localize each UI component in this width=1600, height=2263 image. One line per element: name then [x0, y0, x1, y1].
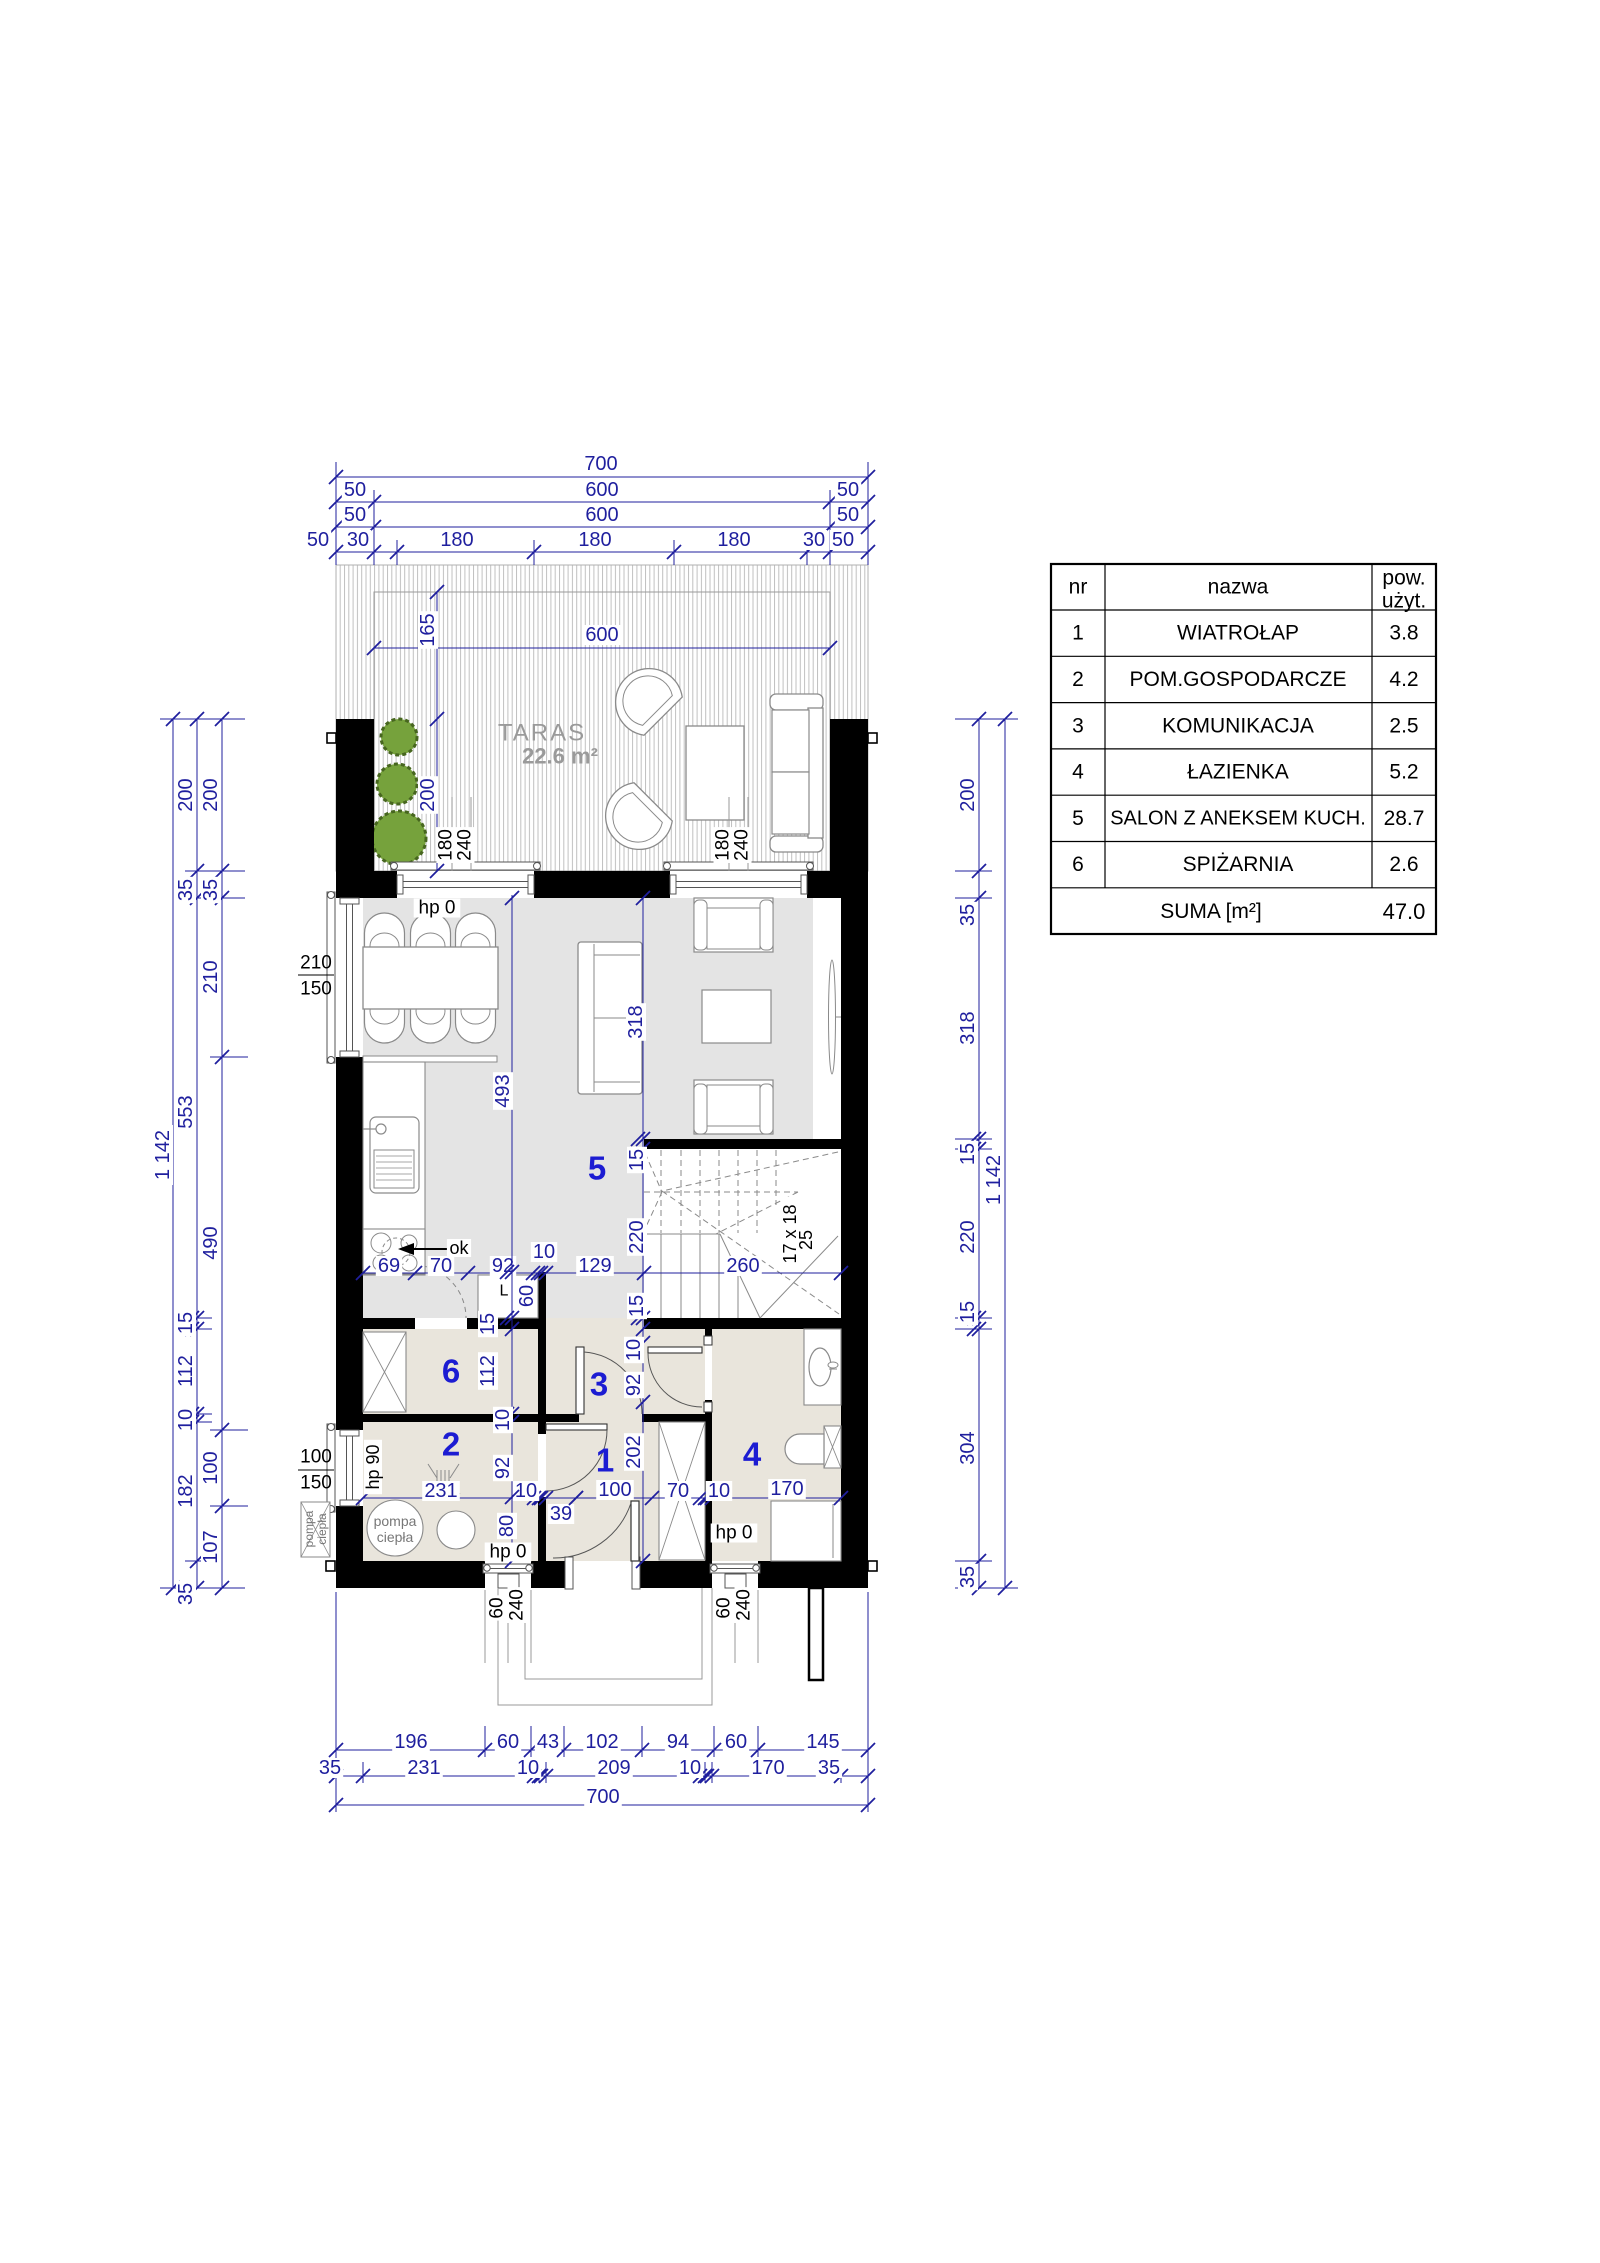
svg-text:15: 15: [626, 1149, 648, 1171]
svg-text:196: 196: [394, 1731, 427, 1753]
svg-text:4.2: 4.2: [1389, 668, 1418, 691]
svg-text:10: 10: [175, 1409, 197, 1431]
svg-text:180: 180: [713, 829, 734, 861]
svg-text:ok: ok: [449, 1238, 469, 1258]
svg-text:5: 5: [588, 1150, 606, 1187]
svg-text:100: 100: [200, 1451, 222, 1484]
svg-text:170: 170: [770, 1478, 803, 1500]
svg-text:SALON Z ANEKSEM KUCH.: SALON Z ANEKSEM KUCH.: [1110, 807, 1366, 829]
svg-text:15: 15: [175, 1312, 197, 1334]
svg-text:35: 35: [818, 1757, 840, 1779]
svg-text:129: 129: [578, 1255, 611, 1277]
svg-text:35: 35: [175, 1583, 197, 1605]
svg-text:112: 112: [175, 1355, 197, 1387]
svg-text:60: 60: [714, 1597, 735, 1618]
svg-text:L: L: [500, 1283, 509, 1300]
svg-text:10: 10: [708, 1480, 730, 1502]
svg-text:28.7: 28.7: [1384, 807, 1425, 830]
svg-text:47.0: 47.0: [1383, 899, 1426, 924]
svg-text:2.5: 2.5: [1389, 714, 1418, 737]
svg-text:10: 10: [517, 1757, 539, 1779]
svg-text:318: 318: [957, 1011, 979, 1044]
svg-text:10: 10: [492, 1409, 514, 1431]
svg-text:1: 1: [596, 1442, 614, 1479]
svg-text:SPIŻARNIA: SPIŻARNIA: [1183, 853, 1294, 876]
svg-text:92: 92: [623, 1374, 645, 1396]
svg-text:nazwa: nazwa: [1208, 576, 1269, 599]
svg-text:180: 180: [578, 529, 611, 551]
svg-text:170: 170: [751, 1757, 784, 1779]
svg-text:35: 35: [319, 1757, 341, 1779]
svg-text:4: 4: [743, 1436, 762, 1473]
svg-text:2.6: 2.6: [1389, 853, 1418, 876]
svg-text:69: 69: [378, 1255, 400, 1277]
svg-text:35: 35: [957, 904, 979, 926]
svg-text:2: 2: [442, 1426, 460, 1463]
svg-text:100: 100: [300, 1447, 332, 1468]
svg-text:15: 15: [957, 1301, 979, 1323]
svg-text:80: 80: [496, 1515, 518, 1537]
svg-text:210: 210: [300, 953, 332, 974]
svg-text:pow.: pow.: [1382, 567, 1425, 590]
svg-text:200: 200: [957, 778, 979, 811]
svg-text:25: 25: [796, 1230, 816, 1250]
svg-text:260: 260: [726, 1255, 759, 1277]
svg-text:493: 493: [492, 1074, 514, 1107]
svg-text:4: 4: [1072, 761, 1084, 784]
svg-text:1 142: 1 142: [152, 1130, 174, 1180]
svg-text:6: 6: [1072, 853, 1084, 876]
svg-text:92: 92: [492, 1457, 514, 1479]
svg-text:hp 0: hp 0: [419, 898, 456, 919]
svg-text:94: 94: [667, 1731, 689, 1753]
svg-text:15: 15: [957, 1143, 979, 1165]
svg-text:50: 50: [832, 529, 854, 551]
svg-text:5.2: 5.2: [1389, 761, 1418, 784]
svg-text:15: 15: [626, 1295, 648, 1317]
svg-text:600: 600: [585, 479, 618, 501]
svg-text:30: 30: [347, 529, 369, 551]
svg-text:145: 145: [806, 1731, 839, 1753]
svg-text:490: 490: [200, 1226, 222, 1259]
svg-text:600: 600: [585, 504, 618, 526]
svg-text:100: 100: [598, 1479, 631, 1501]
svg-text:1 142: 1 142: [983, 1155, 1005, 1205]
svg-text:180: 180: [436, 829, 457, 861]
svg-text:202: 202: [623, 1435, 645, 1468]
svg-text:10: 10: [679, 1757, 701, 1779]
svg-text:35: 35: [957, 1566, 979, 1588]
svg-text:112: 112: [477, 1355, 499, 1387]
svg-text:60: 60: [487, 1597, 508, 1618]
svg-text:700: 700: [586, 1786, 619, 1808]
svg-text:30: 30: [803, 529, 825, 551]
svg-text:231: 231: [424, 1480, 457, 1502]
svg-text:hp 0: hp 0: [716, 1523, 753, 1544]
svg-text:107: 107: [200, 1530, 222, 1563]
svg-text:150: 150: [300, 979, 332, 1000]
svg-text:10: 10: [533, 1241, 555, 1263]
svg-text:60: 60: [725, 1731, 747, 1753]
svg-text:SUMA [m²]: SUMA [m²]: [1160, 900, 1262, 923]
svg-text:304: 304: [957, 1431, 979, 1464]
svg-text:50: 50: [307, 529, 329, 551]
svg-text:600: 600: [585, 624, 618, 646]
svg-text:318: 318: [625, 1005, 647, 1038]
svg-text:553: 553: [175, 1095, 197, 1128]
svg-text:ciepła: ciepła: [315, 1513, 329, 1545]
svg-text:KOMUNIKACJA: KOMUNIKACJA: [1162, 714, 1314, 737]
svg-text:3: 3: [590, 1366, 608, 1403]
svg-text:70: 70: [430, 1255, 452, 1277]
svg-text:43: 43: [537, 1731, 559, 1753]
svg-text:ŁAZIENKA: ŁAZIENKA: [1187, 761, 1289, 784]
svg-text:50: 50: [837, 504, 859, 526]
svg-text:102: 102: [585, 1731, 618, 1753]
svg-text:70: 70: [667, 1480, 689, 1502]
svg-text:200: 200: [175, 778, 197, 811]
svg-text:WIATROŁAP: WIATROŁAP: [1177, 622, 1299, 645]
svg-text:hp 0: hp 0: [490, 1542, 527, 1563]
svg-text:200: 200: [200, 778, 222, 811]
svg-text:60: 60: [516, 1285, 538, 1307]
svg-text:ciepła: ciepła: [377, 1529, 414, 1545]
svg-text:1: 1: [1072, 622, 1084, 645]
svg-text:60: 60: [497, 1731, 519, 1753]
svg-text:180: 180: [440, 529, 473, 551]
svg-text:TARAS: TARAS: [498, 720, 586, 747]
svg-text:50: 50: [344, 479, 366, 501]
svg-text:240: 240: [734, 1589, 755, 1621]
svg-text:5: 5: [1072, 807, 1084, 830]
svg-text:hp 90: hp 90: [363, 1444, 383, 1489]
svg-text:220: 220: [957, 1220, 979, 1253]
svg-text:231: 231: [407, 1757, 440, 1779]
svg-text:3: 3: [1072, 714, 1084, 737]
svg-text:165: 165: [417, 613, 439, 646]
svg-text:pompa: pompa: [374, 1513, 417, 1529]
svg-text:182: 182: [175, 1474, 197, 1507]
svg-text:50: 50: [344, 504, 366, 526]
svg-text:209: 209: [597, 1757, 630, 1779]
svg-text:22.6 m²: 22.6 m²: [522, 744, 598, 769]
svg-text:220: 220: [626, 1220, 648, 1253]
svg-text:użyt.: użyt.: [1382, 590, 1426, 613]
svg-text:2: 2: [1072, 668, 1084, 691]
svg-text:240: 240: [732, 829, 753, 861]
svg-text:POM.GOSPODARCZE: POM.GOSPODARCZE: [1129, 668, 1346, 691]
svg-text:240: 240: [455, 829, 476, 861]
svg-text:240: 240: [507, 1589, 528, 1621]
svg-text:35: 35: [175, 879, 197, 901]
svg-text:39: 39: [550, 1503, 572, 1525]
svg-text:15: 15: [477, 1313, 499, 1335]
svg-text:50: 50: [837, 479, 859, 501]
svg-text:180: 180: [717, 529, 750, 551]
svg-text:35: 35: [200, 879, 222, 901]
svg-text:150: 150: [300, 1473, 332, 1494]
svg-text:700: 700: [584, 453, 617, 475]
svg-text:200: 200: [417, 778, 439, 811]
svg-text:3.8: 3.8: [1389, 622, 1418, 645]
svg-text:6: 6: [442, 1353, 460, 1390]
svg-text:210: 210: [200, 960, 222, 993]
svg-text:nr: nr: [1069, 576, 1088, 599]
svg-text:10: 10: [623, 1339, 645, 1361]
svg-text:pompa: pompa: [302, 1510, 316, 1547]
